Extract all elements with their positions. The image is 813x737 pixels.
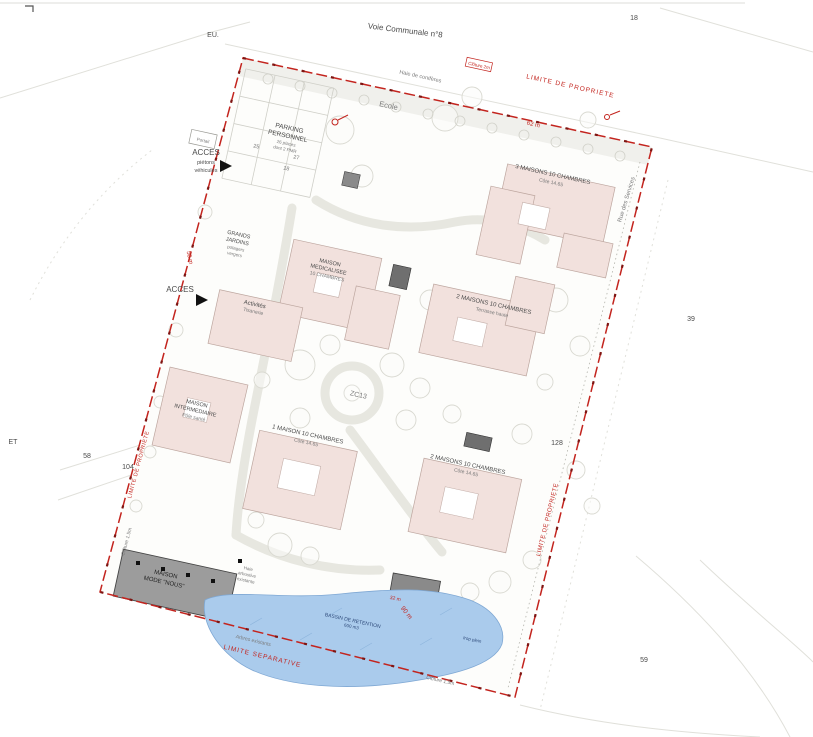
parcel-59: 59: [640, 657, 648, 664]
parcel-128: 128: [551, 440, 563, 447]
svg-text:piétons: piétons: [197, 160, 215, 166]
haie-conifere-label: Haie de conifères: [399, 70, 442, 85]
parcel-18: 18: [630, 15, 638, 22]
stall-count-25: 25: [253, 143, 260, 150]
corner-tick: [25, 6, 33, 12]
road-label-voie-communale: Voie Communale n°8: [367, 21, 443, 39]
parcel-104: 104: [122, 464, 134, 471]
stall-count-27: 27: [293, 154, 300, 161]
portail-label: Portail: [196, 137, 210, 145]
stall-count-18: 18: [283, 165, 290, 172]
site-plan-svg: Voie Communale n°8 Rue des Services EU. …: [0, 0, 813, 737]
svg-text:véhicules: véhicules: [195, 168, 218, 174]
parcel-et: ET: [9, 439, 19, 446]
building-small-2: [342, 171, 361, 188]
parcel-eu: EU.: [207, 32, 219, 39]
acces-south-label: ACCES: [166, 285, 194, 294]
svg-text:ACCES: ACCES: [192, 148, 220, 157]
site-plan-page: Voie Communale n°8 Rue des Services EU. …: [0, 0, 813, 737]
page-frame: [0, 3, 745, 12]
parcel-58: 58: [83, 453, 91, 460]
parcel-39: 39: [687, 316, 695, 323]
limite-top-label: LIMITE DE PROPRIETE: [526, 73, 616, 99]
